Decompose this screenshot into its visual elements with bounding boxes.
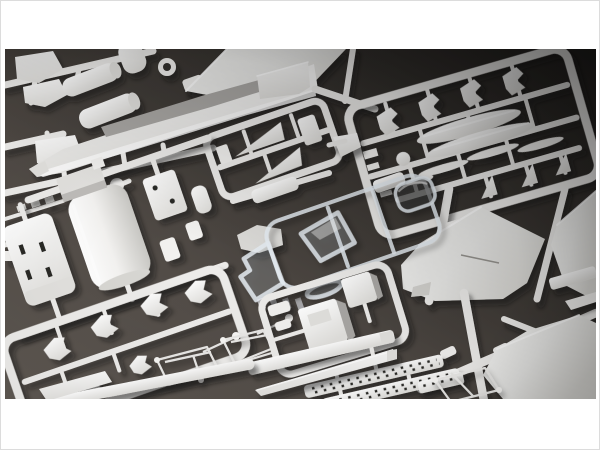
top-right-shading [5, 49, 596, 399]
kit-photo-card [0, 0, 600, 450]
kit-photo [5, 49, 596, 399]
photo [5, 49, 596, 399]
